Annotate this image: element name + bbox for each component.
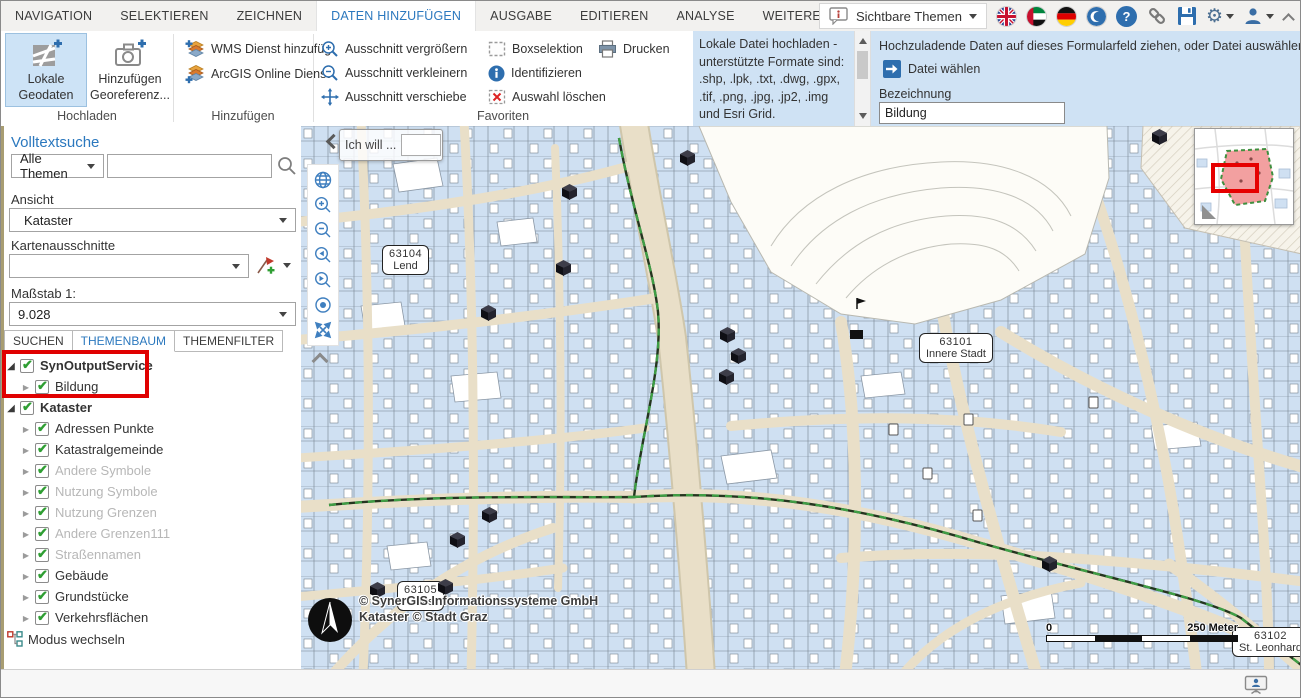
tree-item-label: Nutzung Grenzen: [55, 505, 157, 520]
group-label-hochladen: Hochladen: [1, 109, 173, 123]
save-session-button[interactable]: [1177, 6, 1197, 26]
upload-drop-hint: Hochzuladende Daten auf dieses Formularf…: [879, 39, 1301, 53]
education-marker-icon[interactable]: [481, 305, 496, 321]
local-geodata-button[interactable]: Lokale Geodaten: [5, 33, 87, 107]
expand-arrow-icon[interactable]: [19, 547, 33, 562]
layer-checkbox[interactable]: [35, 548, 49, 562]
ribbon-tab[interactable]: SELEKTIEREN: [106, 1, 222, 31]
globe-default-extent-button[interactable]: [311, 169, 335, 191]
printer-icon: [598, 40, 617, 58]
tree-item[interactable]: Grundstücke: [4, 586, 294, 607]
sidebar-tabs: SUCHEN THEMENBAUM THEMENFILTER: [4, 330, 283, 352]
education-marker-icon[interactable]: [719, 369, 734, 385]
tree-item[interactable]: Nutzung Symbole: [4, 481, 294, 502]
name-field-input[interactable]: [879, 102, 1065, 124]
layer-checkbox[interactable]: [35, 506, 49, 520]
tree-item-label: Gebäude: [55, 568, 109, 583]
layer-checkbox[interactable]: [35, 611, 49, 625]
ribbon-tab-label: NAVIGATION: [15, 9, 92, 23]
tree-item-label: Andere Symbole: [55, 463, 151, 478]
sidebar-tab[interactable]: SUCHEN: [4, 330, 73, 352]
city-extent-area: [1221, 149, 1273, 205]
button-label: ArcGIS Online Dienst: [211, 67, 330, 81]
topbar-right-controls: Sichtbare Themen: [819, 1, 1294, 31]
previous-extent-button[interactable]: [311, 244, 335, 266]
scrollbar-thumb[interactable]: [857, 51, 868, 79]
layer-checkbox[interactable]: [35, 380, 49, 394]
fulltext-search-title[interactable]: Volltextsuche: [11, 134, 99, 151]
georeference-upload-button[interactable]: Hinzufügen Georeferenz...: [89, 33, 171, 107]
layer-checkbox[interactable]: [20, 401, 34, 415]
tree-item-label: Straßennamen: [55, 547, 141, 562]
magnifier-plus-icon: [321, 40, 339, 58]
expand-arrow-icon[interactable]: [19, 484, 33, 499]
ribbon-tab-label: EDITIEREN: [580, 9, 648, 23]
ribbon-tab[interactable]: NAVIGATION: [1, 1, 106, 31]
ribbon-tab[interactable]: ANALYSE: [662, 1, 748, 31]
expand-arrow-icon[interactable]: [19, 442, 33, 457]
full-extent-button[interactable]: [311, 319, 335, 341]
expand-arrow-icon[interactable]: [4, 400, 18, 415]
button-label: Drucken: [623, 42, 670, 56]
next-extent-button[interactable]: [311, 269, 335, 291]
name-field-label: Bezeichnung: [879, 87, 951, 101]
button-label: Ausschnitt vergrößern: [345, 42, 467, 56]
layer-checkbox[interactable]: [35, 569, 49, 583]
scalebar-start-label: 0: [1046, 622, 1052, 634]
add-arcgis-online-service-button[interactable]: ArcGIS Online Dienst: [185, 64, 330, 84]
group-label-favoriten: Favoriten: [313, 109, 693, 123]
extent-menu-chevron-icon[interactable]: [283, 263, 291, 268]
expand-arrow-icon[interactable]: [19, 463, 33, 478]
chevron-down-icon: [279, 218, 287, 223]
button-label: Identifizieren: [511, 66, 582, 80]
layer-checkbox[interactable]: [35, 464, 49, 478]
copyright-line: Kataster © Stadt Graz: [359, 609, 598, 625]
layers-add-icon: [185, 39, 205, 59]
ribbon-tab-label: AUSGABE: [490, 9, 552, 23]
sidebar-tab-label: THEMENBAUM: [81, 334, 166, 348]
button-label: Ausschnitt verkleinern: [345, 66, 467, 80]
layer-checkbox[interactable]: [35, 485, 49, 499]
choose-file-button[interactable]: Datei wählen: [883, 60, 980, 78]
tree-item-label: Kataster: [40, 400, 92, 415]
ribbon-tab-label: DATEN HINZUFÜGEN: [331, 9, 461, 23]
button-label: Auswahl löschen: [512, 90, 606, 104]
button-label-line: Georeferenz...: [90, 87, 170, 103]
info-bubble-icon: [829, 7, 849, 25]
expand-arrow-icon[interactable]: [19, 610, 33, 625]
clear-selection-icon: [488, 89, 506, 105]
education-marker-icon[interactable]: [1152, 129, 1167, 145]
scroll-up-arrow-icon[interactable]: [859, 38, 867, 44]
ribbon-tab[interactable]: AUSGABE: [476, 1, 566, 31]
identify-button[interactable]: Identifizieren: [488, 63, 582, 83]
layer-checkbox[interactable]: [20, 359, 34, 373]
theme-tree: SynOutputService Bildung Kataster: [4, 355, 294, 628]
upload-format-info: Lokale Datei hochladen - unterstützte Fo…: [699, 36, 851, 124]
ribbon-tab-label: ZEICHNEN: [237, 9, 303, 23]
box-selection-button[interactable]: Boxselektion: [488, 39, 583, 59]
tree-item[interactable]: Bildung: [4, 376, 294, 397]
education-marker-icon[interactable]: [450, 532, 465, 548]
settings-menu-button[interactable]: [1206, 5, 1234, 28]
language-flag-crescent-icon[interactable]: [1086, 6, 1107, 27]
tree-item[interactable]: Adressen Punkte: [4, 418, 294, 439]
sidebar-tab[interactable]: THEMENBAUM: [73, 330, 175, 352]
expand-arrow-icon[interactable]: [19, 421, 33, 436]
layer-checkbox[interactable]: [35, 443, 49, 457]
button-label: Ausschnitt verschiebe: [345, 90, 467, 104]
zoom-out-button[interactable]: [311, 219, 335, 241]
education-marker-icon[interactable]: [1042, 556, 1057, 572]
expand-arrow-icon[interactable]: [19, 505, 33, 520]
layer-checkbox[interactable]: [35, 590, 49, 604]
district-label: 63102 St. Leonhard: [1232, 627, 1301, 657]
ribbon-tab-label: SELEKTIEREN: [120, 9, 208, 23]
print-button[interactable]: Drucken: [598, 39, 670, 59]
pan-arrows-icon: [321, 88, 339, 106]
gear-icon: [1206, 5, 1223, 28]
ribbon-content: Lokale Geodaten Hinzufügen Georeferenz..…: [1, 31, 1301, 126]
sidebar-panel: Volltextsuche Alle Themen Ansicht Katast…: [1, 126, 301, 669]
clear-selection-button[interactable]: Auswahl löschen: [488, 87, 606, 107]
webgis-application-window: NAVIGATION SELEKTIEREN ZEICHNEN DATEN HI…: [0, 0, 1301, 698]
camera-icon: [113, 39, 147, 71]
zoom-in-button[interactable]: [311, 194, 335, 216]
presentation-screen-icon[interactable]: [1244, 675, 1268, 695]
expand-arrow-icon[interactable]: [19, 379, 33, 394]
scale-select[interactable]: 9.028: [9, 302, 296, 326]
scale-value: 9.028: [18, 307, 51, 322]
help-button[interactable]: [1116, 6, 1137, 27]
chevron-down-icon: [279, 312, 287, 317]
education-marker-icon[interactable]: [562, 184, 577, 200]
layer-checkbox[interactable]: [35, 527, 49, 541]
tree-item[interactable]: Andere Grenzen111: [4, 523, 294, 544]
identify-info-icon: [488, 65, 505, 82]
tree-item[interactable]: Gebäude: [4, 565, 294, 586]
switch-mode-button[interactable]: Modus wechseln: [7, 631, 125, 647]
choose-file-label: Datei wählen: [908, 62, 980, 76]
language-flag-english-icon[interactable]: [996, 6, 1017, 27]
view-value: Kataster: [24, 213, 72, 228]
user-icon: [1243, 6, 1263, 26]
sidebar-tab-label: SUCHEN: [13, 334, 64, 348]
add-wms-service-button[interactable]: WMS Dienst hinzufüg: [185, 39, 331, 59]
theme-scope-select[interactable]: Alle Themen: [11, 154, 104, 178]
blue-arrow-icon: [883, 60, 901, 78]
theme-scope-value: Alle Themen: [20, 151, 87, 181]
tree-item-label: Adressen Punkte: [55, 421, 154, 436]
chevron-down-icon: [1266, 14, 1274, 19]
fulltext-search-input[interactable]: [107, 154, 272, 178]
expand-arrow-icon[interactable]: [19, 526, 33, 541]
chevron-down-icon: [232, 264, 240, 269]
search-icon[interactable]: [277, 156, 297, 176]
education-marker-icon[interactable]: [482, 507, 497, 523]
user-menu-button[interactable]: [1243, 6, 1274, 26]
tree-item-label: Verkehrsflächen: [55, 610, 148, 625]
scalebar-end-label: 250 Meter: [1187, 622, 1238, 634]
education-marker-icon[interactable]: [680, 150, 695, 166]
language-flag-german-icon[interactable]: [1056, 6, 1077, 27]
sidebar-tab-label: THEMENFILTER: [183, 334, 274, 348]
education-marker-icon[interactable]: [731, 348, 746, 364]
collapse-sidebar-chevron[interactable]: [325, 134, 337, 148]
view-select[interactable]: Kataster: [9, 208, 296, 232]
button-label-line: Lokale: [28, 71, 65, 87]
ribbon-tab[interactable]: ZEICHNEN: [223, 1, 317, 31]
tree-item-label: Bildung: [55, 379, 98, 394]
overview-map[interactable]: [1194, 128, 1294, 225]
expand-arrow-icon[interactable]: [19, 568, 33, 583]
collapse-ribbon-button[interactable]: [1283, 11, 1294, 22]
chevron-down-icon: [1226, 14, 1234, 19]
share-link-button[interactable]: [1146, 5, 1168, 27]
view-label: Ansicht: [11, 192, 54, 207]
scalebar: 0 250 Meter: [1046, 622, 1238, 642]
ich-will-quick-action[interactable]: Ich will ...: [339, 129, 443, 161]
upload-panel-scrollbar[interactable]: [854, 31, 871, 126]
tree-item[interactable]: Nutzung Grenzen: [4, 502, 294, 523]
button-label-line: Geodaten: [19, 87, 74, 103]
map-viewport[interactable]: Ich will ...: [301, 126, 1301, 669]
education-marker-icon[interactable]: [556, 260, 571, 276]
tree-item[interactable]: Katastralgemeinde: [4, 439, 294, 460]
visible-themes-dropdown[interactable]: Sichtbare Themen: [819, 3, 987, 29]
chevron-down-icon: [87, 164, 95, 169]
magnifier-minus-icon: [321, 64, 339, 82]
zoom-in-extent-button[interactable]: Ausschnitt vergrößern: [321, 39, 467, 59]
district-label: 63104 Lend: [382, 245, 429, 275]
scroll-down-arrow-icon[interactable]: [859, 113, 867, 119]
sidebar-tab[interactable]: THEMENFILTER: [175, 330, 283, 352]
tree-item-label: SynOutputService: [40, 358, 153, 373]
tree-item[interactable]: SynOutputService: [4, 355, 294, 376]
toolbar-collapse-chevron[interactable]: [311, 352, 329, 364]
scalebar-segments: [1046, 635, 1238, 642]
tree-item-label: Katastralgemeinde: [55, 442, 163, 457]
expand-arrow-icon[interactable]: [4, 358, 18, 373]
center-map-button[interactable]: [311, 294, 335, 316]
switch-mode-label: Modus wechseln: [28, 632, 125, 647]
map-copyright: © SynerGIS Informationssysteme GmbH Kata…: [359, 593, 598, 625]
expand-arrow-icon[interactable]: [19, 589, 33, 604]
visible-themes-label: Sichtbare Themen: [856, 9, 962, 24]
ich-will-input[interactable]: [401, 134, 441, 156]
map-navigation-toolbar: [307, 164, 339, 346]
north-arrow-compass: [307, 597, 353, 643]
copyright-line: © SynerGIS Informationssysteme GmbH: [359, 593, 598, 609]
local-geodata-map-icon: [30, 39, 62, 71]
map-extents-label: Kartenausschnitte: [11, 238, 115, 253]
language-flag-arabic-icon[interactable]: [1026, 6, 1047, 27]
tree-item-label: Grundstücke: [55, 589, 129, 604]
pan-extent-button[interactable]: Ausschnitt verschiebe: [321, 87, 467, 107]
tree-item[interactable]: Andere Symbole: [4, 460, 294, 481]
ribbon-tab[interactable]: DATEN HINZUFÜGEN: [316, 1, 476, 31]
dashed-box-icon: [488, 41, 506, 57]
education-marker-icon[interactable]: [720, 327, 735, 343]
ich-will-label: Ich will ...: [345, 138, 396, 152]
chevron-down-icon: [969, 14, 977, 19]
ribbon-tab-label: ANALYSE: [676, 9, 734, 23]
tree-mode-icon: [7, 631, 23, 647]
upload-panel: Lokale Datei hochladen - unterstützte Fo…: [693, 31, 1301, 126]
layer-checkbox[interactable]: [35, 422, 49, 436]
district-label: 63101 Innere Stadt: [919, 333, 993, 363]
group-label-hinzufuegen: Hinzufügen: [173, 109, 313, 123]
status-bar: [1, 669, 1301, 698]
button-label: Boxselektion: [512, 42, 583, 56]
tree-item-label: Nutzung Symbole: [55, 484, 158, 499]
tree-item[interactable]: Kataster: [4, 397, 294, 418]
upload-form: Hochzuladende Daten auf dieses Formularf…: [879, 31, 1299, 126]
layers-add-icon: [185, 64, 205, 84]
tree-item-label: Andere Grenzen111: [55, 526, 170, 541]
button-label-line: Hinzufügen: [98, 71, 161, 87]
tree-item[interactable]: Verkehrsflächen: [4, 607, 294, 628]
scale-label: Maßstab 1:: [11, 286, 76, 301]
map-extents-select[interactable]: [9, 254, 249, 278]
save-extent-pin-icon[interactable]: [254, 254, 276, 276]
tree-item[interactable]: Straßennamen: [4, 544, 294, 565]
zoom-out-extent-button[interactable]: Ausschnitt verkleinern: [321, 63, 467, 83]
ribbon-tab[interactable]: EDITIEREN: [566, 1, 662, 31]
